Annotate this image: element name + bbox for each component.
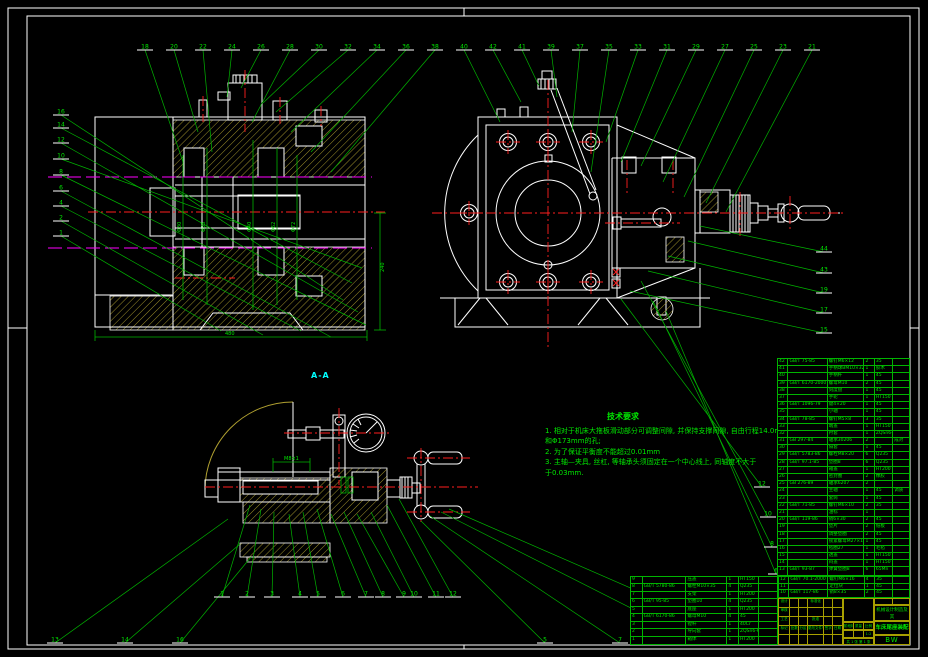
callout-number: 29 xyxy=(692,44,700,51)
bom-cell: 密封圈 xyxy=(828,474,865,480)
bom-cell xyxy=(893,590,909,597)
callout-number: 38 xyxy=(431,44,439,51)
bom-cell: GB 276-89 xyxy=(788,481,827,487)
bom-cell: HT200 xyxy=(739,592,759,598)
bom-cell xyxy=(893,567,909,574)
titleblock-cell: 日期 xyxy=(833,626,842,634)
bom-cell xyxy=(759,599,777,605)
bom-cell: 底座 xyxy=(686,607,727,613)
titleblock-cell xyxy=(799,635,808,644)
bom-cell: 13 xyxy=(778,567,788,574)
bom-cell xyxy=(893,546,909,552)
bom-cell: 4 xyxy=(727,614,739,620)
bom-cell: HT150 xyxy=(875,395,893,401)
sheet-count: 共 1 张 第 1 张 xyxy=(843,638,874,645)
bom-cell: 1 xyxy=(864,488,874,494)
bom-row: 15透盖1HT150 xyxy=(778,553,909,560)
bom-cell: 调整垫圈 xyxy=(828,532,865,538)
bom-cell: 垫圈10 xyxy=(686,599,727,605)
bom-cell: 主轴 xyxy=(828,488,865,494)
bom-cell: 1 xyxy=(727,637,739,644)
bom-row: 42GB/T 75-85螺钉M6×12235 xyxy=(778,359,909,366)
bom-row: 26密封圈2橡胶 xyxy=(778,474,909,481)
bom-cell xyxy=(788,445,827,451)
bom-cell: 35 xyxy=(875,503,893,509)
bom-cell: 1 xyxy=(727,607,739,613)
bom-cell xyxy=(759,607,777,613)
bom-cell: 1 xyxy=(864,553,874,559)
bom-cell: 螺栓M8×20 xyxy=(828,452,865,458)
titleblock-cell: 标准化 xyxy=(808,599,824,607)
note-line: 于0.03mm. xyxy=(545,468,795,479)
bom-cell: 45 xyxy=(875,381,893,387)
bom-cell xyxy=(759,577,777,583)
callout-number: 3 xyxy=(270,591,274,598)
titleblock-cell xyxy=(833,608,842,616)
bom-cell xyxy=(893,584,909,590)
bom-cell xyxy=(788,409,827,415)
bom-cell xyxy=(788,366,827,372)
bom-cell: 2 xyxy=(864,503,874,509)
drawing-title: 车床尾座装配图 xyxy=(874,621,910,635)
bom-row: 7支架1HT200 xyxy=(631,592,777,599)
bom-row: 5底座1HT200 xyxy=(631,607,777,614)
bom-cell: 4 xyxy=(727,584,739,590)
callout-number: 24 xyxy=(228,44,236,51)
bom-cell: 箱体 xyxy=(686,637,727,644)
callout-number: 32 xyxy=(344,44,352,51)
bom-cell: 压盖 xyxy=(686,577,727,583)
bom-cell: 12 xyxy=(779,577,789,583)
bom-cell xyxy=(789,584,828,590)
bom-cell xyxy=(893,409,909,415)
bom-cell: 35 xyxy=(875,417,893,423)
bom-cell: 28 xyxy=(778,460,788,466)
bom-cell: 键4×20 xyxy=(828,402,865,408)
bom-cell: 橡胶 xyxy=(875,474,893,480)
note-line: 1. 相对于机床大拖板滑动部分可调整间隙, 并保持支撑间隙, 自由行程14.0m… xyxy=(545,426,795,437)
bom-cell: 垫圈8 xyxy=(828,460,865,466)
organization-box: 机械设计制造及其 自动化 0403-12 xyxy=(874,605,910,621)
bom-cell xyxy=(643,637,687,644)
bom-cell: 21 xyxy=(778,510,788,516)
bom-cell xyxy=(893,381,909,387)
bom-cell: GB/T 95-85 xyxy=(643,599,687,605)
bom-cell: 1 xyxy=(864,496,874,502)
bom-cell: 45 xyxy=(875,584,893,590)
bom-cell: 19 xyxy=(778,524,788,530)
bom-cell: 调质 xyxy=(893,488,909,494)
bom-cell: GB/T 70.1-2000 xyxy=(789,577,828,583)
titleblock-cell: 批准 xyxy=(808,617,824,625)
bom-cell xyxy=(643,607,687,613)
bom-cell: 销8×35 xyxy=(828,590,864,597)
bom-row: 3镗杆140Cr xyxy=(631,622,777,629)
stage-mark-value xyxy=(844,631,854,637)
dimension-text: Φ35 xyxy=(201,222,207,232)
bom-cell: 隔套 xyxy=(828,445,865,451)
scale-label: 比例 xyxy=(864,623,873,629)
bom-cell: 45 xyxy=(875,488,893,494)
callout-number: 42 xyxy=(489,44,497,51)
bom-cell: 1 xyxy=(864,409,874,415)
bom-row: 10GB/T 117-86销8×35245 xyxy=(779,590,909,597)
titleblock-cell xyxy=(824,608,833,616)
bom-cell xyxy=(759,629,777,635)
bom-cell: 螺钉M5×8 xyxy=(828,417,865,423)
bom-cell xyxy=(788,488,827,494)
bom-cell: 6 xyxy=(864,567,874,574)
bom-cell: 5 xyxy=(631,607,643,613)
bom-cell: 6 xyxy=(864,460,874,466)
bom-row: 22GB/T 71-85螺钉M6×10235 xyxy=(778,503,909,510)
callout-number: 16 xyxy=(57,109,65,116)
bom-cell: 1 xyxy=(864,510,874,516)
titleblock-cell xyxy=(808,608,824,616)
bom-cell: GB/T 75-85 xyxy=(788,359,827,365)
drawing-number-box xyxy=(843,598,874,622)
callout-number: 35 xyxy=(605,44,613,51)
bom-cell: 37 xyxy=(778,395,788,401)
bom-cell: 1 xyxy=(864,366,874,372)
bom-cell: 轴承6207 xyxy=(828,481,865,487)
dimension-text: 480 xyxy=(225,331,235,337)
callout-number: 15 xyxy=(820,327,828,334)
bom-cell xyxy=(759,614,777,620)
titleblock-cell xyxy=(799,599,808,607)
bom-cell: 1 xyxy=(864,546,874,552)
callout-number: 10 xyxy=(57,153,65,160)
dimension-text: M8×1 xyxy=(284,456,299,462)
bom-cell xyxy=(893,481,909,487)
bom-cell: 4 xyxy=(631,614,643,620)
titleblock-cell: 设计 xyxy=(779,599,790,607)
callout-number: 26 xyxy=(257,44,265,51)
bom-cell: 40 xyxy=(778,373,788,379)
callout-number: 10 xyxy=(764,511,772,518)
bom-cell xyxy=(875,438,893,444)
bom-cell: 手柄杆 xyxy=(828,373,865,379)
bom-cell: 25 xyxy=(778,481,788,487)
bom-cell: 1 xyxy=(864,388,874,394)
bom-row: 28GB/T 97.1-85垫圈86Q235 xyxy=(778,460,909,467)
bom-cell xyxy=(893,524,909,530)
titleblock-cell xyxy=(790,635,799,644)
titleblock-cell xyxy=(790,608,799,616)
bom-cell: GB 297-84 xyxy=(788,438,827,444)
bom-cell: 4 xyxy=(865,577,875,583)
bom-cell xyxy=(893,373,909,379)
bom-cell: 胶木 xyxy=(875,366,893,372)
bom-row: 24主轴145调质 xyxy=(778,488,909,495)
bom-row: 2导向套1ZQSn6-6-3 xyxy=(631,629,777,636)
bom-cell: 8 xyxy=(631,584,643,590)
bom-cell: GB/T 93-87 xyxy=(788,567,827,574)
callout-number: 27 xyxy=(721,44,729,51)
bom-cell: 毡圈27 xyxy=(828,546,865,552)
bom-cell: 垫片 xyxy=(828,524,865,530)
bom-row: 8GB/T 5780-86螺栓M10×354Q235 xyxy=(631,584,777,591)
titleblock-cell: 审核 xyxy=(779,608,790,616)
bom-cell: 45 xyxy=(875,402,893,408)
technical-notes: 技术要求 1. 相对于机床大拖板滑动部分可调整间隙, 并保持支撑间隙, 自由行程… xyxy=(545,412,795,478)
bom-row: 32衬套1ZQSn6-6-3 xyxy=(778,431,909,438)
titleblock-cell xyxy=(833,617,842,625)
bom-row: 4GB/T 6170-86螺母M10445 xyxy=(631,614,777,621)
bom-cell xyxy=(788,373,827,379)
bom-cell: 11 xyxy=(779,584,789,590)
bom-cell xyxy=(788,560,827,566)
bom-cell: 6 xyxy=(864,452,874,458)
callout-number: 9 xyxy=(402,591,406,598)
stage-mark-label: 阶段标记 xyxy=(844,623,854,629)
bom-cell: 1 xyxy=(631,637,643,644)
bom-row: 20GB/T 119-86销6×30245 xyxy=(778,517,909,524)
bom-cell: 弹簧垫圈8 xyxy=(828,567,865,574)
bom-cell: 螺栓M10×35 xyxy=(686,584,727,590)
bom-cell xyxy=(875,510,893,516)
bom-cell: 2 xyxy=(864,481,874,487)
bom-cell: 1 xyxy=(864,445,874,451)
callout-number: 37 xyxy=(576,44,584,51)
mark-cell xyxy=(875,599,893,604)
callout-number: 44 xyxy=(820,246,828,253)
bom-row: 11定位块145 xyxy=(779,584,909,591)
bom-cell: 1 xyxy=(727,629,739,635)
bom-cell: 2 xyxy=(864,359,874,365)
titleblock-row: 工艺批准 xyxy=(779,617,842,626)
bom-cell: 4 xyxy=(727,599,739,605)
organization-line1: 机械设计制造及其 xyxy=(875,607,909,621)
bom-row: 23套筒145 xyxy=(778,496,909,503)
bom-cell xyxy=(893,496,909,502)
bom-cell xyxy=(759,637,777,644)
bom-cell: 2 xyxy=(865,590,875,597)
bom-cell xyxy=(893,424,909,430)
bom-cell: 39 xyxy=(778,381,788,387)
bom-cell xyxy=(893,553,909,559)
bom-cell: GB/T 1096-79 xyxy=(788,402,827,408)
dimension-text: 240 xyxy=(380,262,386,272)
bom-cell xyxy=(788,553,827,559)
bom-cell: 手柄球BM10×32 xyxy=(828,366,865,372)
callout-number: 31 xyxy=(663,44,671,51)
titleblock-cell xyxy=(799,608,808,616)
bom-cell: GB/T 6170-86 xyxy=(643,614,687,620)
bom-cell: GB/T 78-85 xyxy=(788,417,827,423)
bom-cell: 22 xyxy=(778,503,788,509)
bom-row: 29GB/T 5783-86螺栓M8×206Q235 xyxy=(778,452,909,459)
bom-cell: 衬套 xyxy=(828,431,865,437)
bom-cell xyxy=(788,510,827,516)
callout-number: 12 xyxy=(758,481,766,488)
bom-cell xyxy=(893,452,909,458)
bom-cell: HT150 xyxy=(875,553,893,559)
callout-number: 17 xyxy=(820,307,828,314)
bom-table-corner: 12GB/T 70.1-2000螺钉M6×1643511定位块14510GB/T… xyxy=(778,576,910,598)
bom-cell xyxy=(788,467,827,473)
bom-cell xyxy=(643,592,687,598)
callout-number: 2 xyxy=(59,215,63,222)
titleblock-row: 审核 xyxy=(779,608,842,617)
bom-cell: 10 xyxy=(779,590,789,597)
callout-number: 20 xyxy=(170,44,178,51)
bom-cell: 38 xyxy=(778,388,788,394)
bom-cell xyxy=(759,592,777,598)
titleblock-row: 设计标准化 xyxy=(779,599,842,608)
bom-cell: 1 xyxy=(864,395,874,401)
bom-cell: 1 xyxy=(864,402,874,408)
bom-cell: 45 xyxy=(875,373,893,379)
bom-row: 13GB/T 93-87弹簧垫圈8665Mn xyxy=(778,567,909,574)
leader-lines xyxy=(55,50,824,643)
bom-row: 17锁紧螺母M27×1.5145 xyxy=(778,539,909,546)
bom-cell: 45 xyxy=(875,388,893,394)
bom-row: 25GB 276-89轴承62072 xyxy=(778,481,909,488)
bom-cell: 1 xyxy=(865,584,875,590)
bom-cell: Q235 xyxy=(875,452,893,458)
bom-table-left: 9压盖1HT1508GB/T 5780-86螺栓M10×354Q2357支架1H… xyxy=(630,576,778,645)
bom-cell: 螺母M10 xyxy=(686,614,727,620)
bom-cell: 24 xyxy=(778,488,788,494)
bom-cell: 小轴 xyxy=(828,409,865,415)
bom-cell: 2 xyxy=(864,532,874,538)
callout-number: 13 xyxy=(51,637,59,644)
dimension-text: Φ40 xyxy=(247,222,253,232)
titleblock-cell: 分区 xyxy=(799,626,808,634)
bom-cell: 40Cr xyxy=(739,622,759,628)
callout-number: 4 xyxy=(298,591,302,598)
bom-row: 31GB 297-84轴承302062成对 xyxy=(778,438,909,445)
bom-cell: 1 xyxy=(727,577,739,583)
bom-cell: 1 xyxy=(864,560,874,566)
bom-cell xyxy=(893,460,909,466)
bom-cell: 1 xyxy=(727,622,739,628)
bom-cell xyxy=(893,503,909,509)
bom-cell: 箱盖 xyxy=(828,467,865,473)
bom-cell: 1 xyxy=(864,539,874,545)
bom-row: 18调整垫圈245 xyxy=(778,532,909,539)
callout-number: 10 xyxy=(410,591,418,598)
callout-number: 11 xyxy=(432,591,440,598)
callout-number: 36 xyxy=(402,44,410,51)
bom-cell: 手轮 xyxy=(828,395,865,401)
bom-row: 36GB/T 1096-79键4×20145 xyxy=(778,402,909,409)
bom-row: 21油标1 xyxy=(778,510,909,517)
cad-sheet: 1820222426283032343638404241393735333129… xyxy=(0,0,928,657)
bom-cell: 支架 xyxy=(686,592,727,598)
dimension-text: Φ30 xyxy=(177,222,183,232)
callout-number: 19 xyxy=(820,287,828,294)
bom-cell: 2 xyxy=(631,629,643,635)
callout-number: 41 xyxy=(518,44,526,51)
bom-cell: 18 xyxy=(778,532,788,538)
callout-number: 14 xyxy=(121,637,129,644)
bom-cell: 35 xyxy=(778,409,788,415)
callout-number: 6 xyxy=(341,591,345,598)
bom-cell xyxy=(788,524,827,530)
callout-number: 39 xyxy=(547,44,555,51)
bom-cell: 15 xyxy=(778,553,788,559)
callout-number: 5 xyxy=(543,637,547,644)
callout-number: 2 xyxy=(245,591,249,598)
bom-cell: 2 xyxy=(864,524,874,530)
bom-cell: HT150 xyxy=(739,577,759,583)
bom-cell: Q235 xyxy=(739,599,759,605)
bom-table-right: 42GB/T 75-85螺钉M6×1223541手柄球BM10×321胶木40手… xyxy=(777,358,910,576)
bom-row: 38刻度盘145 xyxy=(778,388,909,395)
bom-cell xyxy=(788,546,827,552)
dimension-text: Φ72 xyxy=(291,222,297,232)
bom-cell: 1 xyxy=(727,592,739,598)
bom-cell: 26 xyxy=(778,474,788,480)
callout-number: 43 xyxy=(820,267,828,274)
titleblock-cell xyxy=(824,599,833,607)
bom-cell: 1 xyxy=(864,373,874,379)
bom-row: 30隔套145 xyxy=(778,445,909,452)
titleblock-row: 标记处数分区更改文件号签字日期 xyxy=(779,626,842,635)
bom-row: 41手柄球BM10×321胶木 xyxy=(778,366,909,373)
bom-row: 16毡圈271毛毡 xyxy=(778,546,909,553)
bom-cell: 31 xyxy=(778,438,788,444)
section-label: A-A xyxy=(311,371,330,380)
bom-cell xyxy=(893,467,909,473)
titleblock-cell: 工艺 xyxy=(779,617,790,625)
bom-cell: 6 xyxy=(631,599,643,605)
bom-cell: 20 xyxy=(778,517,788,523)
bom-cell: 1 xyxy=(864,424,874,430)
callout-number: 40 xyxy=(460,44,468,51)
bom-cell: 螺母M10 xyxy=(828,381,865,387)
bom-cell: 螺钉M6×10 xyxy=(828,503,865,509)
bom-cell: Q235 xyxy=(875,460,893,466)
bom-cell xyxy=(893,474,909,480)
bom-cell xyxy=(788,388,827,394)
bom-cell: 1 xyxy=(864,431,874,437)
callout-number: 4 xyxy=(59,200,63,207)
bom-cell: 透盖 xyxy=(828,553,865,559)
bom-cell: 销6×30 xyxy=(828,517,865,523)
titleblock-cell: 签字 xyxy=(824,626,833,634)
bom-cell: 刻度盘 xyxy=(828,388,865,394)
callout-number: 33 xyxy=(634,44,642,51)
bom-cell xyxy=(643,629,687,635)
bom-row: 35小轴145 xyxy=(778,409,909,416)
titleblock-cell xyxy=(833,599,842,607)
bom-cell xyxy=(893,431,909,437)
bom-cell xyxy=(893,532,909,538)
bom-cell xyxy=(788,539,827,545)
mass-label: 质量 xyxy=(854,623,864,629)
titleblock-cell xyxy=(790,599,799,607)
bom-cell: HT150 xyxy=(875,560,893,566)
bom-cell: 36 xyxy=(778,402,788,408)
bom-cell: 29 xyxy=(778,452,788,458)
bom-cell: 端盖 xyxy=(828,424,865,430)
dimension-text: Φ62 xyxy=(271,222,277,232)
bom-cell xyxy=(759,622,777,628)
callout-number: 12 xyxy=(449,591,457,598)
callout-number: 28 xyxy=(286,44,294,51)
bom-cell xyxy=(893,417,909,423)
bom-row: 39GB/T 6170-2000螺母M10245 xyxy=(778,381,909,388)
bom-cell: 45 xyxy=(875,517,893,523)
bom-cell: 成对 xyxy=(893,438,909,444)
bom-cell: 14 xyxy=(778,560,788,566)
bom-cell xyxy=(893,539,909,545)
bom-cell: 2 xyxy=(864,517,874,523)
note-line: 3. 主轴—夹具, 丝杠, 等轴承头须固定在一个中心线上, 同轴度不大于 xyxy=(545,457,795,468)
